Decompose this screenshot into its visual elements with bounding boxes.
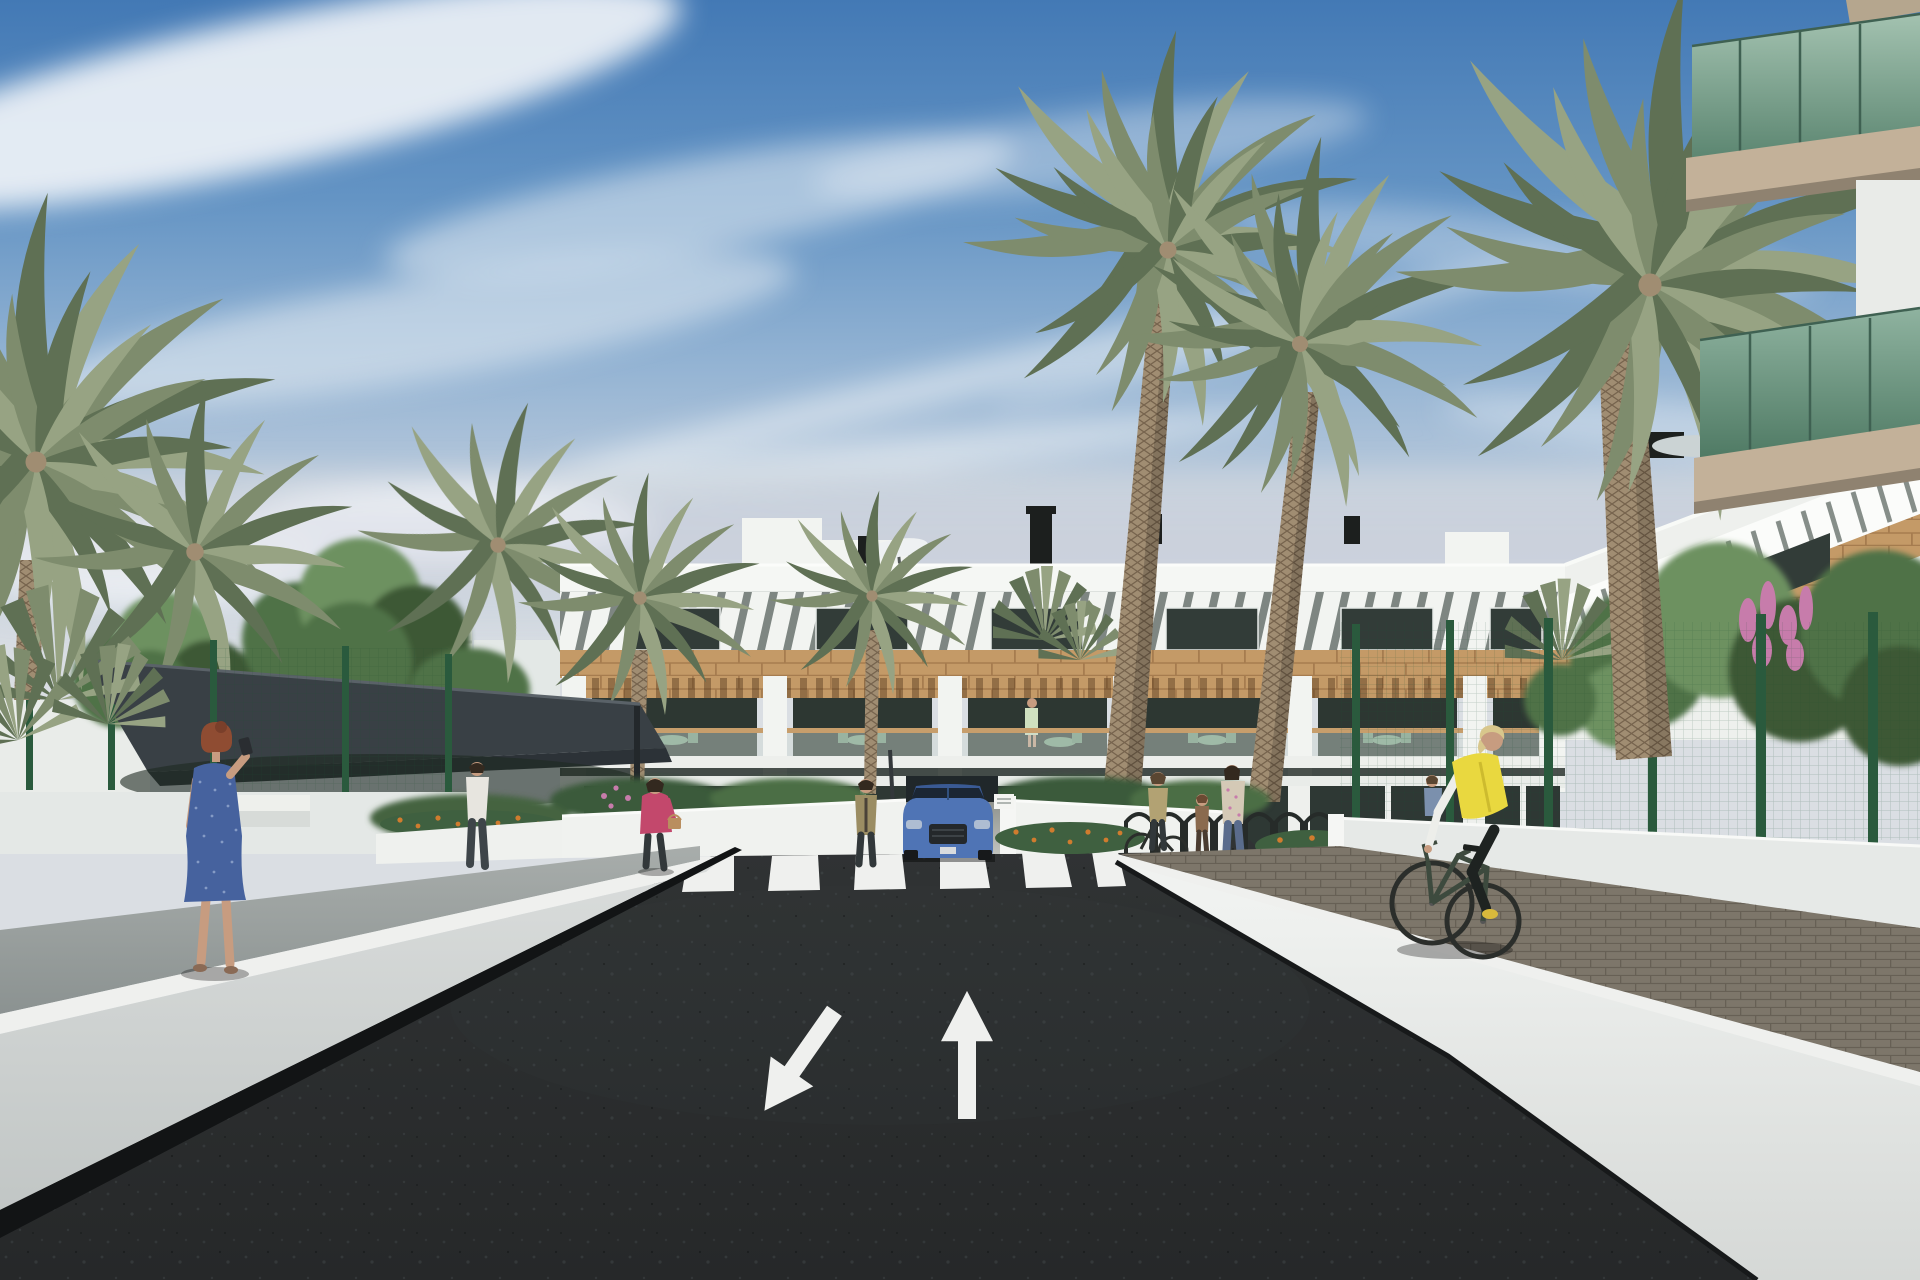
architectural-render xyxy=(0,0,1920,1280)
scene-canvas xyxy=(0,0,1920,1280)
chimney xyxy=(1344,516,1360,544)
entrance-sign xyxy=(994,794,1014,809)
suv xyxy=(903,784,995,862)
flower-bed-center-right xyxy=(995,822,1145,854)
handbag xyxy=(668,818,681,829)
chimney xyxy=(1030,510,1052,568)
